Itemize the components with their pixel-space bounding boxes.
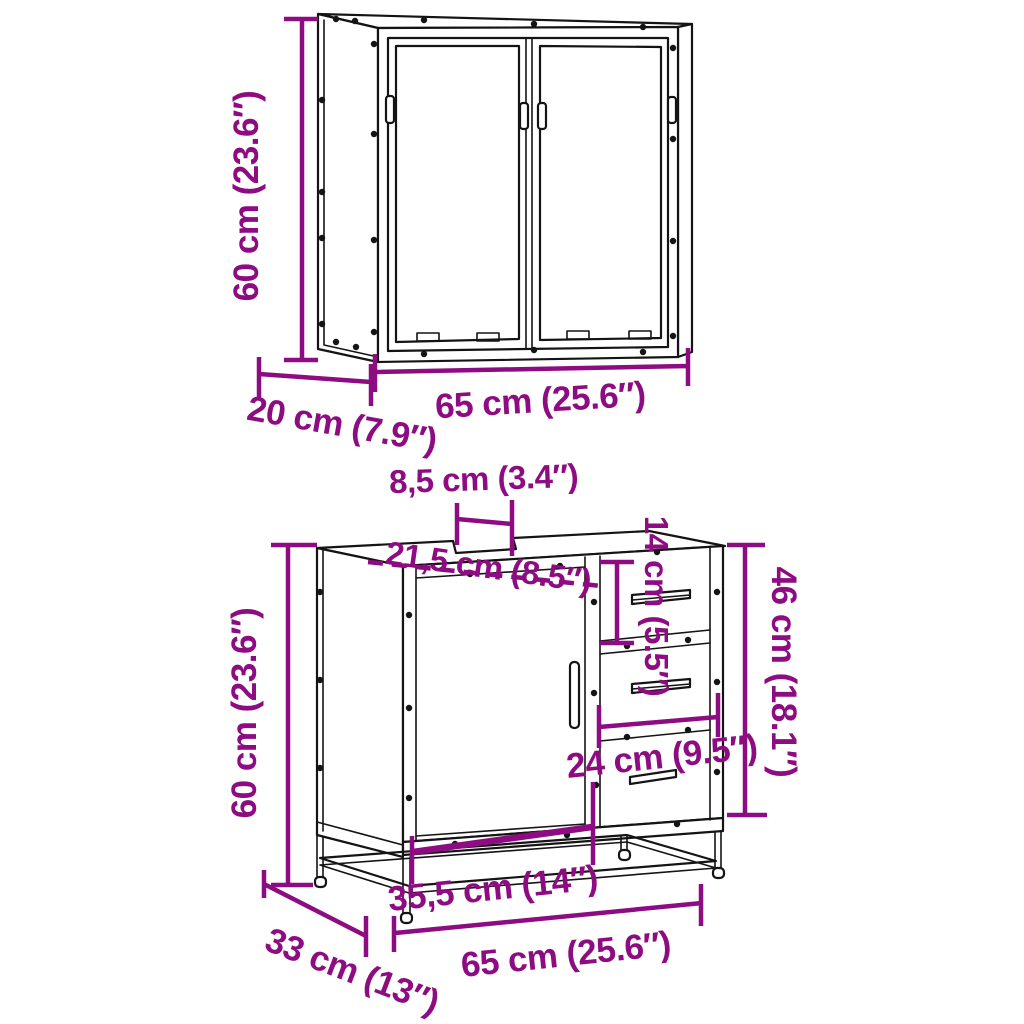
sink-depth-label: 33 cm (13″) <box>260 920 444 1022</box>
leg-front-right <box>715 831 721 870</box>
door-handle-right <box>538 103 546 129</box>
mirror-cabinet-front-frame <box>378 27 678 362</box>
mirror-depth-label: 20 cm (7.9″) <box>244 389 440 461</box>
diagram-canvas: 60 cm (23.6″) 65 cm (25.6″) 20 cm (7.9″)… <box>0 0 1024 1024</box>
product-dimension-diagram: 60 cm (23.6″) 65 cm (25.6″) 20 cm (7.9″)… <box>0 0 1024 1024</box>
door-handle-left <box>520 103 528 129</box>
mirror-cabinet <box>318 14 692 362</box>
mirror-height-label: 60 cm (23.6″) <box>227 91 266 302</box>
mirror-width-label: 65 cm (25.6″) <box>434 375 647 427</box>
sink-width-label: 65 cm (25.6″) <box>459 924 673 985</box>
cutout-width-label: 8,5 cm (3.4″) <box>388 457 578 501</box>
mirror-height-dimension-line <box>284 19 318 360</box>
side-opening-dimension-line <box>727 545 767 815</box>
door-hinge-right <box>668 97 676 123</box>
shelf-width-label: 35,5 cm (14″) <box>386 858 600 919</box>
mirror-cabinet-right-edge <box>678 24 692 357</box>
side-opening-label: 46 cm (18.1″) <box>764 567 803 778</box>
mirror-cabinet-top-face <box>318 14 692 28</box>
foot <box>619 850 630 860</box>
door-handle <box>570 662 579 728</box>
mirror-cabinet-side-panel <box>318 14 378 362</box>
sink-height-dimension-line <box>271 545 317 885</box>
drawer-height-label: 14 cm (5.5″) <box>638 516 675 696</box>
sink-cabinet-side-panel <box>317 548 403 857</box>
foot <box>713 868 724 878</box>
foot <box>315 877 326 887</box>
sink-height-label: 60 cm (23.6″) <box>225 608 264 819</box>
door-hinge-left <box>386 96 394 123</box>
